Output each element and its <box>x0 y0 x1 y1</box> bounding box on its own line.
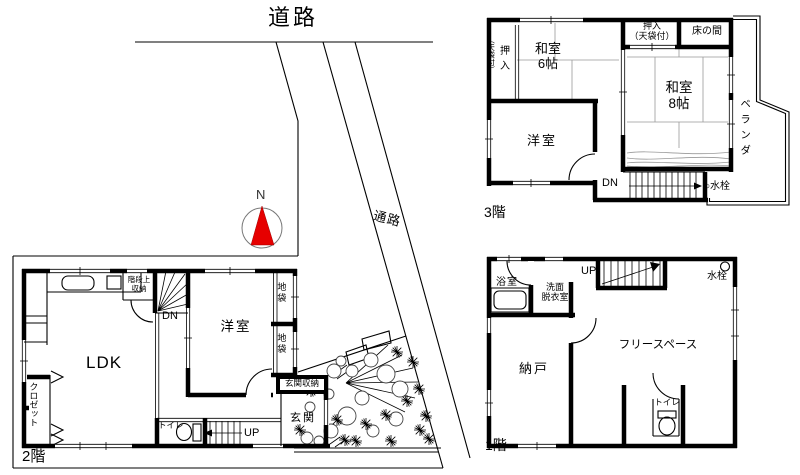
compass <box>242 206 282 248</box>
lot-boundary-lines <box>13 42 470 468</box>
jibukuro-lower-label: 地袋 <box>276 333 286 355</box>
closet-oshiire-side-note: （天袋付） <box>486 36 495 74</box>
washroom-label: 洗面 脱衣室 <box>534 282 576 303</box>
stairs-up-2f-label: UP <box>244 427 259 440</box>
faucet-3f-label: ○水栓 <box>704 181 730 193</box>
toilet-2f-label: トイレ <box>158 421 184 431</box>
floor1-label: 1階 <box>485 437 507 453</box>
compass-needle-icon <box>251 206 274 245</box>
floor2-label: 2階 <box>22 448 45 465</box>
kitchen-sink-icon <box>62 276 94 290</box>
floorplan-page: 道路 通路 N 和室 6帖 押入 （天袋付） 押入 （天袋付） 床の間 和室 8… <box>0 0 800 475</box>
toilet-1f-label: トイレ <box>650 398 684 408</box>
closet-label: クロゼット <box>28 382 38 427</box>
road-label: 道路 <box>268 5 332 30</box>
stove-icon <box>107 276 121 289</box>
closet-oshiire-top-label: 押入 （天袋付） <box>625 21 679 42</box>
floor1-plan <box>485 255 739 450</box>
stairs-dn-3f-label: DN <box>602 177 618 190</box>
room-youshitsu-3f-label: 洋室 <box>518 134 566 149</box>
compass-n-label: N <box>256 188 265 203</box>
bathroom-label: 浴室 <box>496 277 518 289</box>
genkan-storage-label: 玄関収納 <box>281 379 323 389</box>
room-youshitsu-2f-label: 洋室 <box>212 319 260 335</box>
toilet-bowl-icon <box>659 417 675 435</box>
genkan-label: 玄関 <box>284 412 322 425</box>
room-ldk-label: LDK <box>86 353 122 373</box>
stairs-dn-2f-label: DN <box>162 310 178 323</box>
veranda-label: ベランダ <box>739 98 751 160</box>
free-space-label: フリースペース <box>616 339 700 352</box>
room-washitsu8-label: 和室 8帖 <box>648 80 710 111</box>
floor3-label: 3階 <box>484 204 506 220</box>
jibukuro-upper-label: 地袋 <box>276 282 286 304</box>
toilet-tank-icon <box>193 424 201 441</box>
closet-oshiire-side-label: 押入 <box>497 45 509 75</box>
room-washitsu6-label: 和室 6帖 <box>517 42 579 72</box>
tokonoma-label: 床の間 <box>683 26 731 38</box>
stair-storage-label: 階段上 収納 <box>124 276 154 293</box>
stairs-up-1f-label: UP <box>581 265 596 278</box>
faucet-1f-label: 水栓 <box>707 271 727 283</box>
storage-nando-label: 納戸 <box>512 362 556 377</box>
